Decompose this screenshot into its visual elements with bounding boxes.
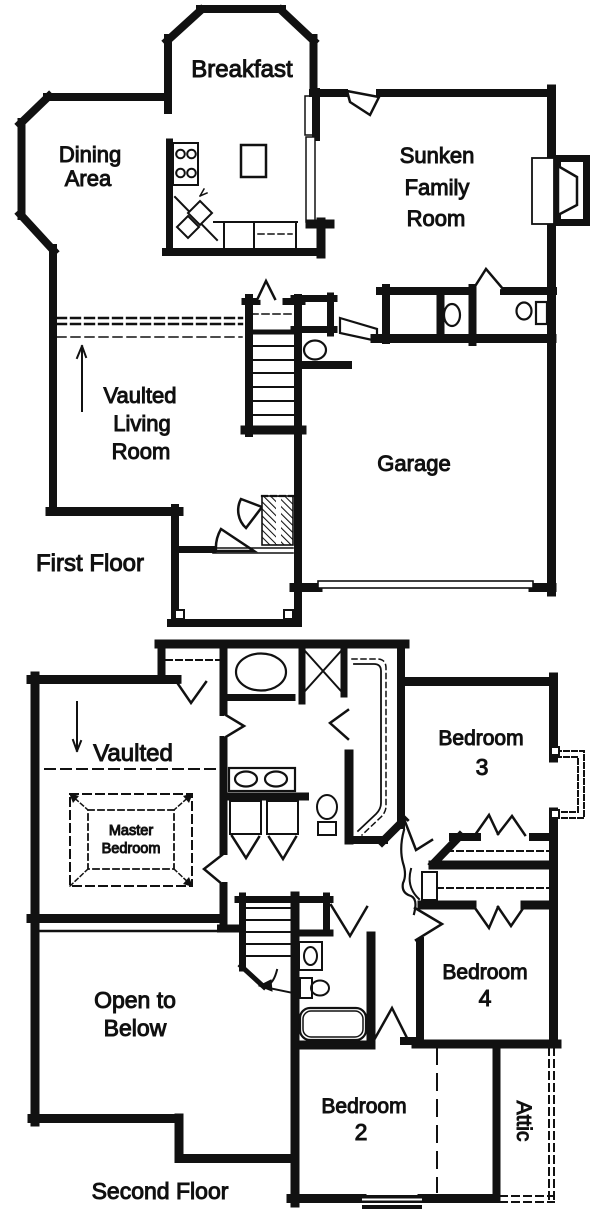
svg-text:Living: Living xyxy=(113,411,170,436)
svg-text:Area: Area xyxy=(65,166,112,191)
svg-text:Bedroom: Bedroom xyxy=(321,1095,406,1118)
svg-text:Vaulted: Vaulted xyxy=(93,740,173,767)
svg-text:4: 4 xyxy=(479,985,492,1011)
svg-text:Below: Below xyxy=(104,1015,167,1041)
svg-text:Sunken: Sunken xyxy=(400,143,475,168)
svg-text:Dining: Dining xyxy=(59,142,121,167)
svg-text:Open to: Open to xyxy=(94,987,176,1013)
svg-text:Vaulted: Vaulted xyxy=(104,383,177,408)
svg-text:Bedroom: Bedroom xyxy=(442,961,527,984)
svg-text:Master: Master xyxy=(109,823,153,839)
svg-text:Family: Family xyxy=(405,175,470,200)
svg-text:Bedroom: Bedroom xyxy=(102,841,161,857)
svg-text:Second Floor: Second Floor xyxy=(92,1178,229,1204)
svg-text:Breakfast: Breakfast xyxy=(191,56,293,83)
svg-text:2: 2 xyxy=(355,1119,368,1145)
svg-text:Room: Room xyxy=(112,439,171,464)
svg-text:Bedroom: Bedroom xyxy=(438,727,523,750)
svg-text:Attic: Attic xyxy=(512,1101,535,1142)
svg-text:First Floor: First Floor xyxy=(36,550,144,577)
svg-text:Garage: Garage xyxy=(377,451,450,476)
svg-text:Room: Room xyxy=(407,206,466,231)
svg-text:3: 3 xyxy=(476,754,489,780)
